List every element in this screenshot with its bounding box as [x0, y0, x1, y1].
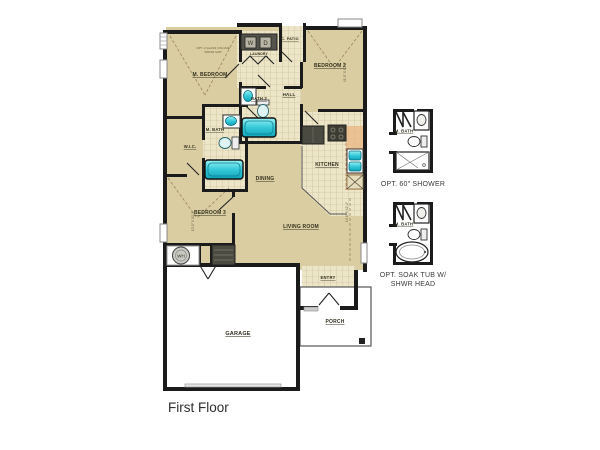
floor-plan-page: W D WH M. BEDROOM BEDROOM 2 [0, 0, 600, 450]
bath2-label: BATH 2 [251, 96, 267, 101]
garage-label: GARAGE [225, 331, 250, 337]
mbath-toilet [219, 137, 239, 149]
hvac-unit [212, 245, 235, 265]
pantry [347, 175, 363, 189]
washer-dryer-unit: W D [241, 34, 277, 50]
water-heater: WH [167, 246, 199, 265]
option1-toilet [408, 136, 427, 147]
option1-mbath-label: M. BATH [395, 129, 414, 134]
entry-step [304, 307, 318, 311]
refrigerator [302, 126, 324, 144]
hall-label: HALL [283, 92, 296, 97]
c-patio-label: C. PATIO [281, 37, 299, 41]
floor-fills [165, 26, 371, 389]
mbath-label: M. BATH [206, 127, 225, 132]
laundry-label: LAUNDRY [250, 52, 268, 56]
page-title: First Floor [168, 400, 229, 415]
kitchen-label: KITCHEN [315, 162, 339, 168]
bedroom2-label: BEDROOM 2 [314, 63, 346, 69]
porch-outline [300, 287, 371, 346]
bedroom3-label: BEDROOM 3 [194, 210, 226, 216]
option1-caption: OPT. 60" SHOWER [381, 181, 445, 188]
garage-door [185, 384, 281, 387]
m-bedroom-option-note-2: WNDW GRP [204, 50, 221, 54]
option2-caption-line2: SHWR HEAD [391, 281, 436, 288]
range-stove [328, 125, 346, 141]
dryer-label: D [263, 41, 268, 47]
option-shower-diagram: M. BATH OPT. 60" SHOWER [381, 109, 445, 188]
entry-label: ENTRY [320, 275, 335, 280]
garage-floor [165, 265, 298, 389]
option-soak-tub-diagram: M. BATH OPT. SOAK TUB W/ SHWR HEAD [380, 202, 446, 288]
kitchen-sink [347, 149, 363, 173]
option1-closet-doors [396, 112, 411, 127]
porch-column [359, 338, 365, 344]
bedroom2-dimension: 11'-0" X 10'-6" [343, 62, 347, 82]
dining-label: DINING [256, 176, 275, 182]
option2-closet-doors [396, 205, 411, 220]
living-room-label: LIVING ROOM [283, 224, 319, 230]
m-bedroom-label: M. BEDROOM [192, 72, 227, 78]
porch-label: PORCH [325, 319, 344, 325]
option2-mbath-label: M. BATH [395, 222, 414, 227]
option1-sink [414, 111, 429, 130]
water-heater-label: WH [177, 254, 185, 259]
living-room-dimension: 14'-6" X 12'-4" [345, 202, 349, 222]
wic-label: W.I.C. [184, 144, 197, 149]
washer-label: W [248, 41, 254, 47]
bath2-tub [242, 118, 276, 137]
mbath-tub [205, 160, 243, 179]
option2-toilet [408, 229, 427, 240]
bedroom3-dimension: 10'-0" X 10'-2" [191, 211, 195, 231]
option2-sink [414, 204, 429, 223]
option2-soak-tub [396, 242, 428, 262]
bath2-toilet [257, 100, 269, 118]
mbath-sink [223, 115, 240, 128]
option2-caption-line1: OPT. SOAK TUB W/ [380, 272, 446, 279]
option1-shower [396, 152, 429, 170]
floor-plan-drawing: W D WH M. BEDROOM BEDROOM 2 [0, 0, 600, 450]
